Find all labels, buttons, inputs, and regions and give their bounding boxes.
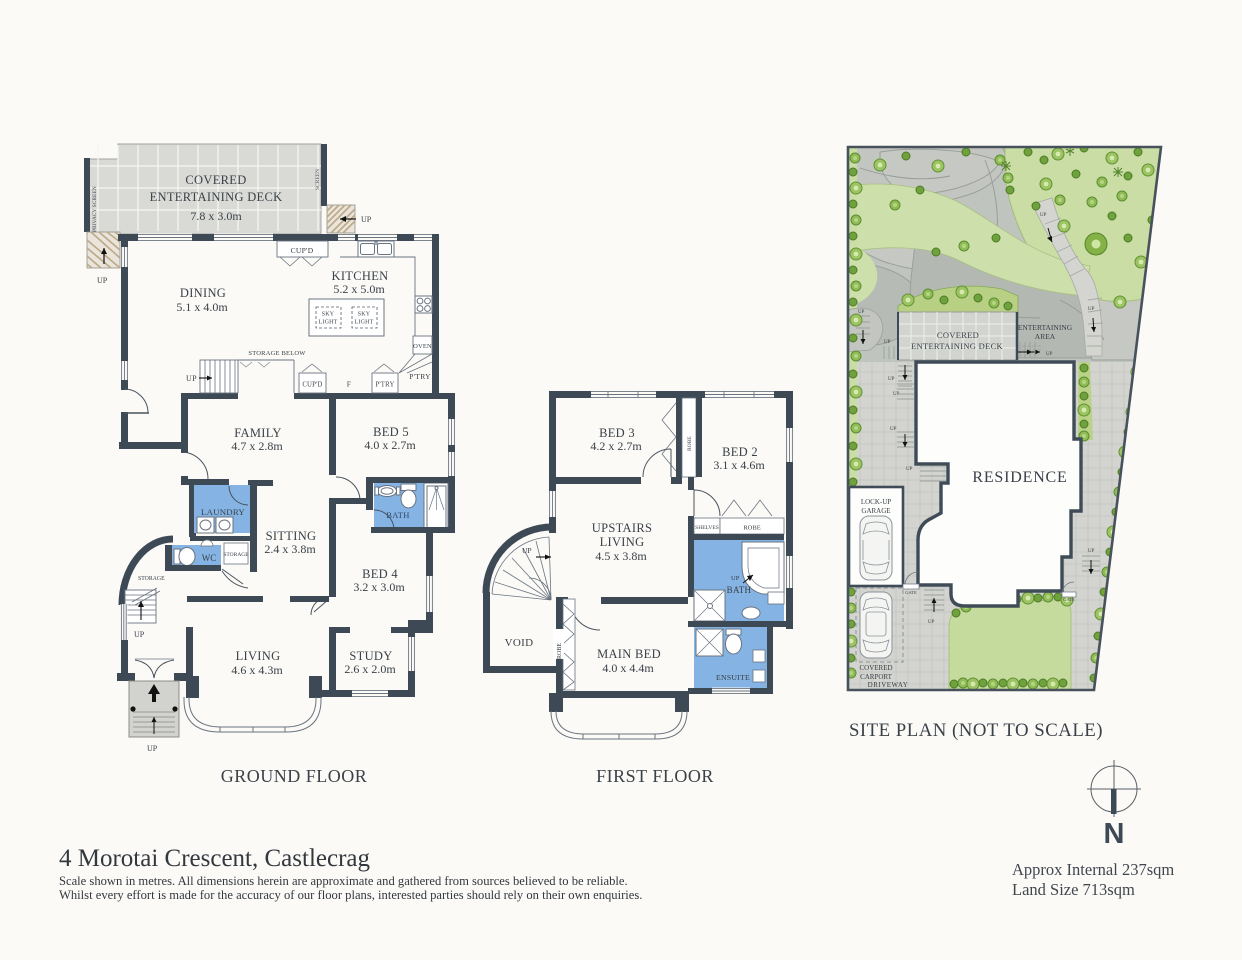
svg-text:2.6 x 2.0m: 2.6 x 2.0m	[344, 662, 396, 676]
svg-text:BATH: BATH	[727, 585, 752, 595]
svg-text:STUDY: STUDY	[349, 649, 392, 663]
svg-text:LIVING: LIVING	[600, 535, 645, 549]
svg-text:SKY: SKY	[358, 312, 371, 318]
svg-text:Land Size 713sqm: Land Size 713sqm	[1012, 880, 1135, 899]
svg-text:P'TRY: P'TRY	[375, 382, 394, 389]
svg-text:4.2 x 2.7m: 4.2 x 2.7m	[590, 439, 642, 453]
svg-text:UP: UP	[1088, 549, 1095, 554]
svg-text:GATE: GATE	[1063, 597, 1075, 602]
svg-text:UP: UP	[890, 427, 897, 432]
svg-text:UP: UP	[186, 374, 197, 383]
svg-text:FIRST FLOOR: FIRST FLOOR	[596, 766, 714, 786]
svg-text:Whilst every effort is made fo: Whilst every effort is made for the accu…	[59, 888, 642, 902]
svg-text:LIVING: LIVING	[236, 649, 281, 663]
svg-text:ENTERTAINING DECK: ENTERTAINING DECK	[150, 190, 283, 204]
svg-text:UP: UP	[147, 744, 158, 753]
svg-text:CUP'D: CUP'D	[302, 382, 322, 389]
svg-text:SITE PLAN (NOT TO SCALE): SITE PLAN (NOT TO SCALE)	[849, 720, 1103, 741]
svg-text:WC: WC	[202, 553, 217, 563]
svg-text:UP: UP	[928, 620, 935, 625]
svg-text:BED 3: BED 3	[599, 426, 635, 440]
svg-text:CUP'D: CUP'D	[291, 246, 314, 255]
svg-text:UP: UP	[906, 467, 913, 472]
svg-text:BED 5: BED 5	[373, 425, 409, 439]
svg-text:SHELVES: SHELVES	[695, 525, 719, 531]
svg-text:STORAGE: STORAGE	[138, 576, 165, 582]
svg-text:BED 2: BED 2	[722, 445, 758, 459]
svg-text:5.2 x 5.0m: 5.2 x 5.0m	[333, 282, 385, 296]
svg-text:COVERED: COVERED	[185, 173, 246, 187]
svg-text:4.0 x 4.4m: 4.0 x 4.4m	[602, 661, 654, 675]
svg-text:UP: UP	[522, 546, 532, 555]
svg-text:SKY: SKY	[322, 312, 335, 318]
svg-text:MAIN BED: MAIN BED	[597, 647, 661, 661]
svg-text:STORAGE BELOW: STORAGE BELOW	[248, 350, 306, 357]
svg-text:GROUND FLOOR: GROUND FLOOR	[221, 766, 368, 786]
svg-text:P'TRY: P'TRY	[409, 372, 431, 381]
svg-text:RESIDENCE: RESIDENCE	[972, 469, 1067, 486]
svg-text:2.4 x 3.8m: 2.4 x 3.8m	[264, 542, 316, 556]
svg-text:UP: UP	[731, 575, 740, 582]
svg-text:COVERED: COVERED	[937, 330, 979, 340]
svg-text:AREA: AREA	[1035, 332, 1056, 341]
svg-text:UP: UP	[1040, 213, 1047, 218]
svg-text:UP: UP	[1046, 352, 1053, 357]
svg-text:ENTERTAINING DECK: ENTERTAINING DECK	[911, 341, 1004, 351]
svg-text:3.1 x 4.6m: 3.1 x 4.6m	[713, 458, 765, 472]
svg-text:UP: UP	[361, 215, 372, 224]
svg-text:STORAGE: STORAGE	[223, 552, 249, 558]
svg-text:ROBE: ROBE	[687, 436, 693, 451]
svg-text:LOCK-UP: LOCK-UP	[861, 498, 891, 506]
svg-text:KITCHEN: KITCHEN	[332, 269, 389, 283]
svg-text:COVERED: COVERED	[859, 664, 892, 672]
svg-text:UP: UP	[1088, 307, 1095, 312]
svg-text:DINING: DINING	[180, 286, 226, 300]
svg-text:ENTERTAINING: ENTERTAINING	[1018, 323, 1073, 332]
svg-text:LIGHT: LIGHT	[355, 320, 374, 326]
svg-text:GARAGE: GARAGE	[861, 507, 890, 515]
svg-text:UP: UP	[884, 340, 891, 345]
svg-text:VOID: VOID	[505, 637, 534, 649]
svg-text:SITTING: SITTING	[266, 529, 317, 543]
svg-text:CARPORT: CARPORT	[860, 673, 893, 681]
svg-text:3.2 x 3.0m: 3.2 x 3.0m	[353, 580, 405, 594]
svg-text:N: N	[1104, 818, 1125, 850]
svg-text:OVEN: OVEN	[413, 343, 432, 350]
svg-text:4.6 x 4.3m: 4.6 x 4.3m	[231, 663, 283, 677]
svg-text:7.8 x 3.0m: 7.8 x 3.0m	[190, 209, 242, 223]
svg-text:UPSTAIRS: UPSTAIRS	[592, 521, 652, 535]
svg-text:UP: UP	[893, 392, 900, 397]
svg-text:Approx Internal 237sqm: Approx Internal 237sqm	[1012, 860, 1174, 879]
svg-text:ENSUITE: ENSUITE	[716, 673, 750, 682]
svg-text:SCREEN: SCREEN	[315, 169, 321, 190]
svg-text:DRIVEWAY: DRIVEWAY	[868, 681, 909, 689]
svg-text:LIGHT: LIGHT	[319, 320, 338, 326]
svg-text:4 Morotai Crescent, Castlecrag: 4 Morotai Crescent, Castlecrag	[59, 845, 371, 872]
svg-text:BED 4: BED 4	[362, 567, 398, 581]
svg-text:UP: UP	[134, 630, 145, 639]
svg-text:UP: UP	[97, 276, 108, 285]
svg-text:4.0 x 2.7m: 4.0 x 2.7m	[364, 438, 416, 452]
svg-text:Scale shown in metres. All dim: Scale shown in metres. All dimensions he…	[59, 874, 628, 888]
svg-text:ROBE: ROBE	[557, 643, 563, 659]
svg-text:LAUNDRY: LAUNDRY	[201, 507, 245, 517]
svg-text:GATE: GATE	[905, 590, 917, 595]
svg-text:ROBE: ROBE	[743, 525, 760, 532]
svg-text:5.1 x 4.0m: 5.1 x 4.0m	[176, 300, 228, 314]
svg-text:F: F	[347, 380, 351, 389]
svg-text:PRIVACY SCREEN: PRIVACY SCREEN	[92, 186, 98, 232]
svg-text:4.5 x 3.8m: 4.5 x 3.8m	[595, 549, 647, 563]
svg-text:UP: UP	[888, 377, 895, 382]
svg-text:FAMILY: FAMILY	[234, 426, 282, 440]
svg-text:4.7 x 2.8m: 4.7 x 2.8m	[231, 439, 283, 453]
